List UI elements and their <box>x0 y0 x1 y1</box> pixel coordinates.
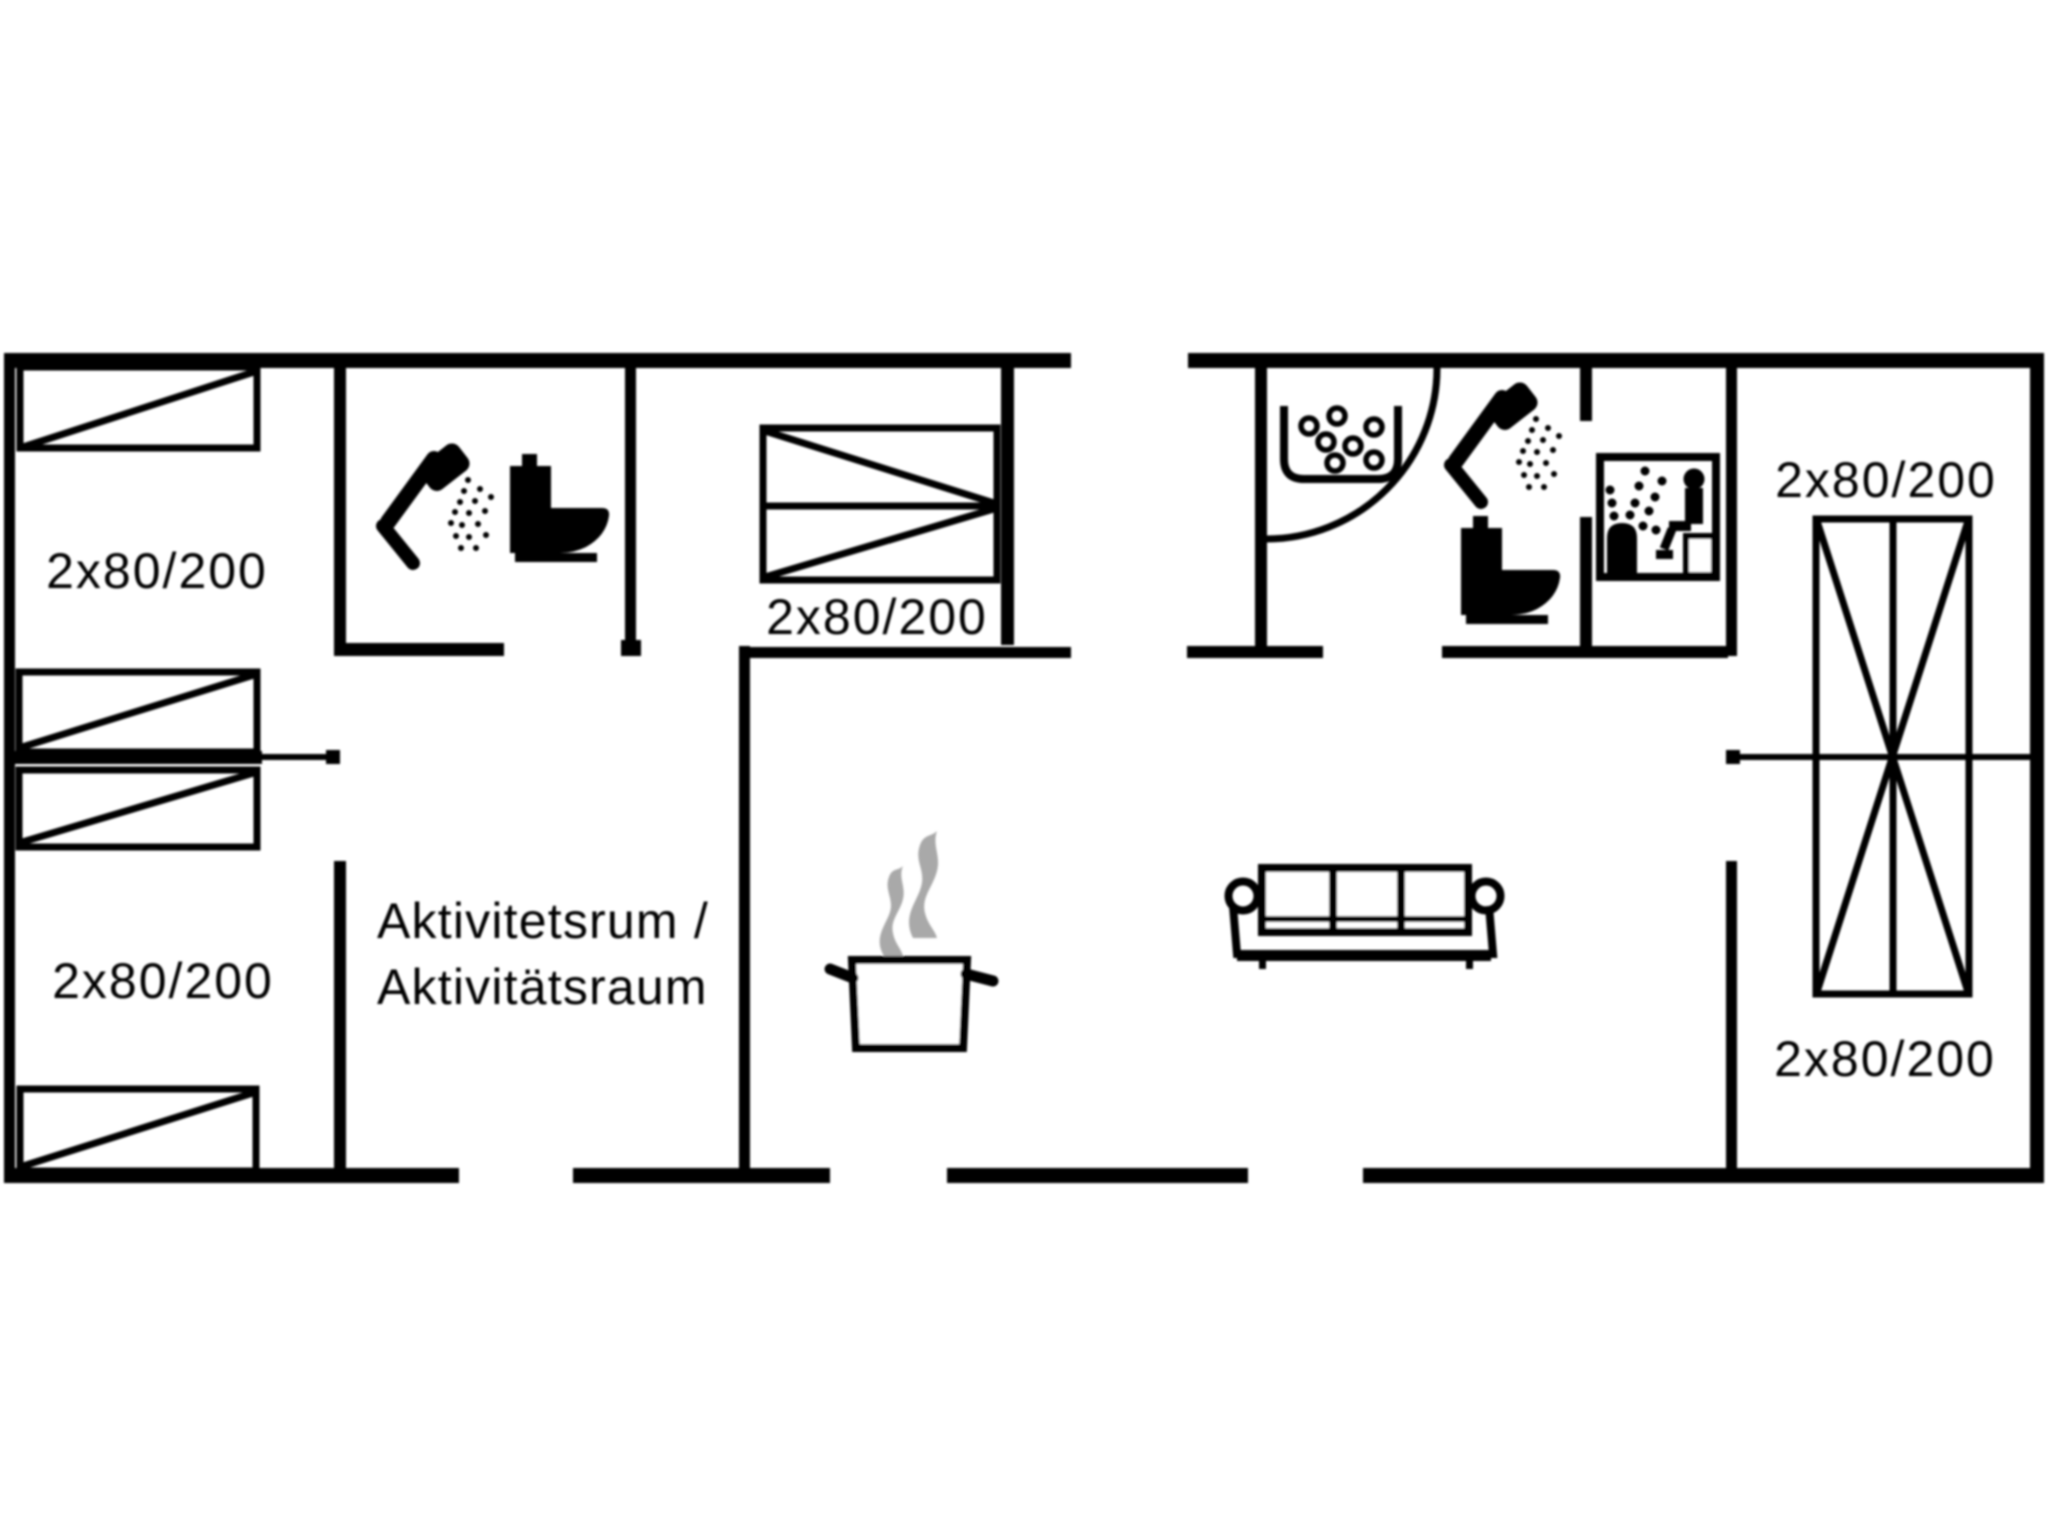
svg-text:2x80/200: 2x80/200 <box>52 953 274 1009</box>
svg-text:Aktivitätsraum: Aktivitätsraum <box>377 959 708 1015</box>
svg-text:2x80/200: 2x80/200 <box>1775 452 1997 508</box>
svg-text:2x80/200: 2x80/200 <box>766 589 988 645</box>
svg-text:Aktivitetsrum /: Aktivitetsrum / <box>377 893 709 949</box>
svg-text:2x80/200: 2x80/200 <box>1774 1031 1996 1087</box>
svg-text:2x80/200: 2x80/200 <box>46 543 268 599</box>
